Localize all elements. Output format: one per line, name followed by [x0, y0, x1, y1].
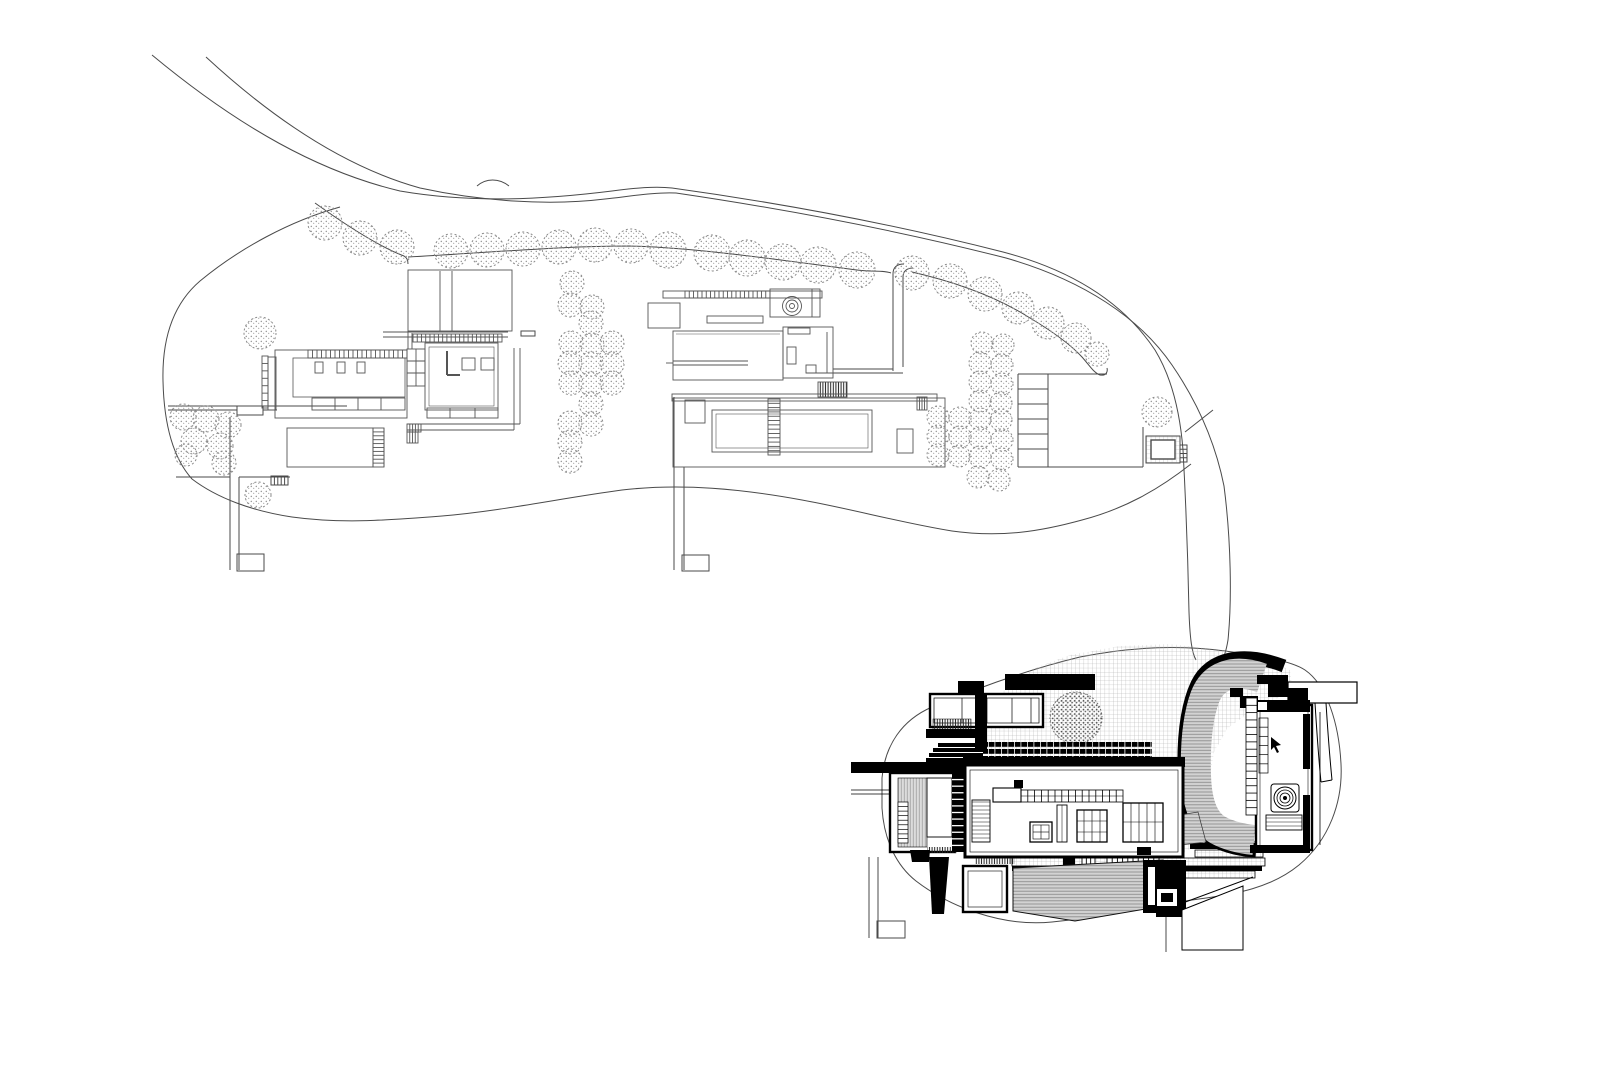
tree-icon [949, 407, 971, 429]
tree-icon [614, 229, 648, 263]
tree-icon [933, 264, 967, 298]
tree-icon [558, 449, 582, 473]
tree-icon [1002, 292, 1034, 324]
tree-icon [991, 448, 1013, 470]
tree-icon [193, 406, 219, 432]
tree-icon [969, 408, 991, 430]
tree-icon [971, 332, 993, 354]
tree-icon [991, 354, 1013, 376]
tree-icon [969, 352, 991, 374]
tree-icon [578, 228, 612, 262]
stair-hatch [818, 382, 847, 397]
tree-icon [895, 256, 929, 290]
tree-icon [308, 206, 342, 240]
tree-icon [969, 446, 991, 468]
main-house [965, 765, 1183, 857]
tree-icon [765, 244, 801, 280]
lower-room [963, 866, 1007, 912]
tree-icon [990, 409, 1012, 431]
tree-icon [245, 482, 271, 508]
tree-icon [244, 317, 276, 349]
tree-icon [380, 230, 414, 264]
tree-icon [600, 331, 624, 355]
upper-wing-roof [1005, 674, 1095, 690]
tree-icon [694, 235, 730, 271]
tree-icon [506, 232, 540, 266]
tree-icon [967, 466, 989, 488]
tree-icon [175, 444, 197, 466]
louver-panel [972, 800, 990, 842]
tree-icon [969, 371, 991, 393]
tree-icon [927, 406, 949, 428]
tree-icon [991, 373, 1013, 395]
tree-icon [949, 426, 971, 448]
tree-icon [560, 271, 584, 295]
tree-icon [434, 234, 468, 268]
tree-icon [969, 427, 991, 449]
tree-icon [579, 412, 603, 436]
site-plan-page [0, 0, 1598, 1065]
tree-icon [170, 404, 196, 430]
tree-single [1142, 397, 1172, 427]
tree-icon [1032, 307, 1064, 339]
tree-icon [948, 445, 970, 467]
site-plan-drawing [0, 0, 1598, 1065]
tree-icon [212, 451, 236, 475]
tree-icon [800, 247, 836, 283]
tree-icon [558, 293, 582, 317]
tree-icon [1085, 342, 1109, 366]
paper-background [0, 0, 1598, 1065]
tree-icon [470, 233, 504, 267]
courtyard-tree [1050, 692, 1102, 744]
tree-icon [988, 469, 1010, 491]
tree-icon [968, 277, 1002, 311]
tree-icon [927, 425, 949, 447]
tree-icon [650, 232, 686, 268]
tree-icon [1142, 397, 1172, 427]
tree-icon [343, 221, 377, 255]
tree-icon [992, 334, 1014, 356]
tree-icon [542, 230, 576, 264]
tree-icon [729, 240, 765, 276]
tree-icon [927, 444, 949, 466]
tree-icon [579, 311, 603, 335]
tree-icon [600, 371, 624, 395]
tree-icon [991, 429, 1013, 451]
tree-icon [839, 252, 875, 288]
